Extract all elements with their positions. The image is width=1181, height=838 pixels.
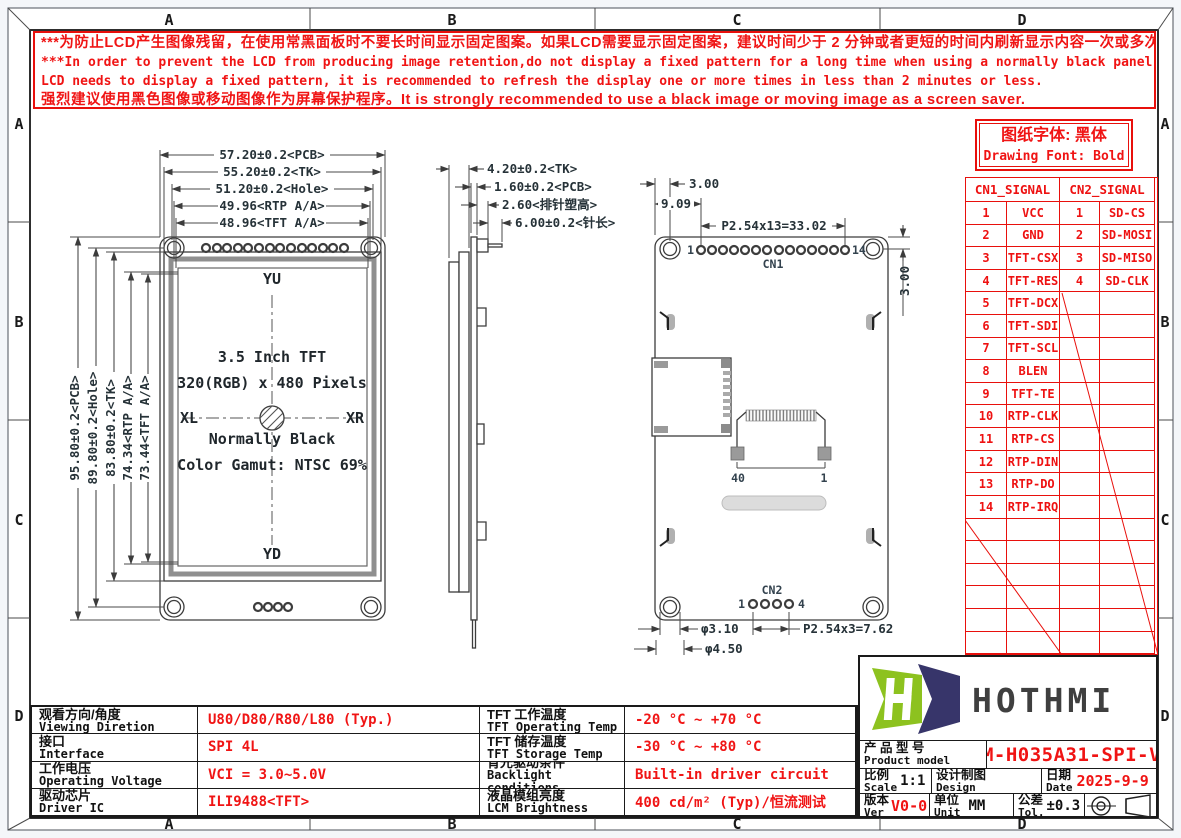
- cell: 8: [966, 360, 1007, 383]
- cell: [1100, 360, 1155, 383]
- label-yu: YU: [263, 270, 281, 288]
- dim-header-height: 2.60<排针塑高>: [502, 197, 597, 212]
- cn1-label: CN1: [763, 257, 784, 271]
- side-dims: 4.20±0.2<TK> 1.60±0.2<PCB> 2.60<排针塑高> 6.…: [436, 161, 615, 258]
- design-label-en: Design: [936, 782, 986, 794]
- spec-label: TFT 储存温度TFT Storage Temp: [480, 734, 625, 761]
- signal-table: CN1_SIGNAL CN2_SIGNAL 1VCC1SD-CS 2GND2SD…: [965, 177, 1158, 655]
- cell: [1100, 473, 1155, 496]
- fpc-pin40-label: 40: [731, 471, 745, 485]
- font-note-en: Drawing Font: Bold: [980, 148, 1128, 165]
- cell: [1060, 496, 1100, 519]
- display-size-text: 3.5 Inch TFT: [218, 348, 326, 366]
- cell: RTP-DO: [1007, 473, 1060, 496]
- cell: 3: [966, 247, 1007, 270]
- cell: TFT-DCX: [1007, 292, 1060, 315]
- cell: 10: [966, 405, 1007, 428]
- cell: [1100, 292, 1155, 315]
- display-mode-text: Normally Black: [209, 430, 335, 448]
- cell: 2: [966, 225, 1007, 248]
- spec-label: 液晶模组亮度LCM Brightness: [480, 789, 625, 816]
- drawing-sheet: A B C D A B C D A B C D A B C D: [0, 0, 1181, 838]
- cell: [1060, 292, 1100, 315]
- spec-label: 接口Interface: [32, 734, 198, 761]
- cell: [1100, 338, 1155, 361]
- cell: 3: [1060, 247, 1100, 270]
- cell: [1060, 360, 1100, 383]
- hothmi-logo-icon: HOTHMI: [860, 660, 1156, 738]
- cell: 13: [966, 473, 1007, 496]
- unit-label-en: Unit: [934, 807, 961, 819]
- spec-label-en: TFT Operating Temp: [487, 721, 624, 734]
- grid-row-d-right: D: [1160, 707, 1169, 725]
- warning-line-2: ***In order to prevent the LCD from prod…: [41, 53, 1148, 72]
- dim-pcb-height: 95.80±0.2<PCB>: [67, 375, 82, 480]
- spec-value: -30 °C ~ +80 °C: [625, 734, 856, 761]
- cell: 12: [966, 451, 1007, 474]
- grid-row-d-left: D: [14, 707, 23, 725]
- logo-text: HOTHMI: [972, 681, 1115, 720]
- label-xr: XR: [346, 409, 365, 427]
- cell: TFT-SCL: [1007, 338, 1060, 361]
- cell: GND: [1007, 225, 1060, 248]
- projection-symbol-icon: [1086, 794, 1156, 818]
- cell: 6: [966, 315, 1007, 338]
- dim-pin1-offset: 9.09: [661, 196, 691, 211]
- warning-line-3: LCD needs to display a fixed pattern, it…: [41, 72, 1148, 91]
- dim-tk-width: 55.20±0.2<TK>: [223, 164, 321, 179]
- cn1-pin14-label: 14: [852, 243, 866, 257]
- spec-label-en: Backlight conditions: [487, 769, 624, 789]
- ver-value: V0-0: [891, 797, 927, 815]
- scale-label-cn: 比例: [864, 769, 897, 782]
- cn1-pin1-label: 1: [687, 243, 694, 257]
- cell: [1100, 315, 1155, 338]
- cn2-header: CN2_SIGNAL: [1060, 178, 1155, 202]
- product-model: HTM-H035A31-SPI-V04: [987, 744, 1156, 766]
- cell: SD-MISO: [1100, 247, 1155, 270]
- cell: 4: [1060, 270, 1100, 293]
- tol-value: ±0.3: [1047, 798, 1081, 814]
- spec-value: Built-in driver circuit: [625, 762, 856, 789]
- cell: 14: [966, 496, 1007, 519]
- spec-label-en: Viewing Diretion: [39, 721, 197, 734]
- dim-hole-offset-right: 3.00: [897, 266, 912, 296]
- dim-pcb-thickness: 1.60±0.2<PCB>: [494, 179, 592, 194]
- grid-row-b-right: B: [1160, 313, 1169, 331]
- scale-value: 1:1: [900, 773, 925, 789]
- slot-oval: [722, 496, 826, 510]
- spec-label: 观看方向/角度Viewing Diretion: [32, 707, 198, 734]
- spec-label: TFT 工作温度TFT Operating Temp: [480, 707, 625, 734]
- cell: TFT-SDI: [1007, 315, 1060, 338]
- display-resolution-text: 320(RGB) x 480 Pixels: [177, 374, 367, 392]
- cell: [1060, 315, 1100, 338]
- grid-row-b-left: B: [14, 313, 23, 331]
- spec-label-en: Interface: [39, 748, 197, 761]
- dim-tft-height: 73.44<TFT A/A>: [137, 375, 152, 480]
- grid-row-c-right: C: [1160, 511, 1169, 529]
- cell: [1060, 473, 1100, 496]
- grid-row-a-right: A: [1160, 115, 1169, 133]
- fpc-pin1-label: 1: [821, 471, 828, 485]
- cell: [1060, 451, 1100, 474]
- cn2-label: CN2: [762, 583, 783, 597]
- title-block: HOTHMI 产 品 型 号 Product model HTM-H035A31…: [858, 655, 1158, 818]
- cell: [1100, 496, 1155, 519]
- side-view: 4.20±0.2<TK> 1.60±0.2<PCB> 2.60<排针塑高> 6.…: [436, 161, 615, 648]
- spec-label-en: TFT Storage Temp: [487, 748, 624, 761]
- scale-label-en: Scale: [864, 782, 897, 794]
- spec-label-en: LCM Brightness: [487, 802, 624, 815]
- spec-value: U80/D80/R80/L80 (Typ.): [198, 707, 480, 734]
- ver-label-cn: 版本: [864, 794, 889, 807]
- logo: HOTHMI: [860, 657, 1156, 740]
- spec-label-cn: 观看方向/角度: [39, 708, 197, 721]
- font-note-cn: 图纸字体: 黑体: [980, 124, 1128, 148]
- dim-tk-thickness: 4.20±0.2<TK>: [487, 161, 577, 176]
- dim-tk-height: 83.80±0.2<TK>: [103, 379, 118, 477]
- cn2-pin1-label: 1: [738, 597, 745, 611]
- cell: RTP-DIN: [1007, 451, 1060, 474]
- spec-label-cn: TFT 储存温度: [487, 735, 624, 748]
- spec-value: ILI9488<TFT>: [198, 789, 480, 816]
- spec-label: 驱动芯片Driver IC: [32, 789, 198, 816]
- back-view: 1 14 CN1 40 1: [634, 176, 912, 656]
- cn2-pin4-label: 4: [798, 597, 805, 611]
- spec-value: -20 °C ~ +70 °C: [625, 707, 856, 734]
- cell: 5: [966, 292, 1007, 315]
- dim-hole-height: 89.80±0.2<Hole>: [85, 372, 100, 485]
- cell: [1100, 451, 1155, 474]
- date-label-cn: 日期: [1046, 769, 1073, 782]
- spec-table: 观看方向/角度Viewing Diretion U80/D80/R80/L80 …: [30, 705, 858, 818]
- cell: RTP-CLK: [1007, 405, 1060, 428]
- retention-warning-box: ***为防止LCD产生图像残留，在使用常黑面板时不要长时间显示固定图案。如果LC…: [33, 31, 1156, 109]
- grid-col-d-top: D: [1017, 11, 1026, 29]
- cell: [1060, 428, 1100, 451]
- cell: [1060, 405, 1100, 428]
- ver-label-en: Ver: [864, 807, 889, 819]
- cell: 2: [1060, 225, 1100, 248]
- label-xl: XL: [180, 409, 198, 427]
- cell: 7: [966, 338, 1007, 361]
- dim-rtp-height: 74.34<RTP A/A>: [120, 375, 135, 480]
- cell: 4: [966, 270, 1007, 293]
- cell: VCC: [1007, 202, 1060, 225]
- dim-hole-offset: 3.00: [689, 176, 719, 191]
- unit-label-cn: 单位: [934, 794, 961, 807]
- cell: TFT-RES: [1007, 270, 1060, 293]
- spec-label-cn: TFT 工作温度: [487, 708, 624, 721]
- cell: 11: [966, 428, 1007, 451]
- dim-hole-inner-dia: φ3.10: [701, 621, 739, 636]
- cell: RTP-IRQ: [1007, 496, 1060, 519]
- cn1-header: CN1_SIGNAL: [966, 178, 1060, 202]
- spec-value: SPI 4L: [198, 734, 480, 761]
- grid-col-b-top: B: [447, 11, 456, 29]
- dim-hole-outer-dia: φ4.50: [705, 641, 743, 656]
- grid-row-c-left: C: [14, 511, 23, 529]
- spec-value: VCI = 3.0~5.0V: [198, 762, 480, 789]
- dim-hole-width: 51.20±0.2<Hole>: [216, 181, 329, 196]
- spec-label: 工作电压Operating Voltage: [32, 762, 198, 789]
- dim-rtp-width: 49.96<RTP A/A>: [219, 198, 324, 213]
- date-value: 2025-9-9: [1077, 772, 1149, 790]
- dim-pcb-width: 57.20±0.2<PCB>: [219, 147, 324, 162]
- display-gamut-text: Color Gamut: NTSC 69%: [177, 456, 367, 474]
- tol-label-en: Tol.: [1018, 807, 1045, 819]
- cell: 1: [1060, 202, 1100, 225]
- spec-label-en: Operating Voltage: [39, 775, 197, 788]
- dim-cn1-pitch: P2.54x13=33.02: [721, 218, 826, 233]
- front-view: YU YD XL XR 3.5 Inch TFT 320(RGB) x 480 …: [67, 147, 385, 620]
- cell: [1100, 405, 1155, 428]
- cell: TFT-TE: [1007, 383, 1060, 406]
- label-yd: YD: [263, 545, 281, 563]
- design-label-cn: 设计制图: [936, 769, 986, 782]
- dim-tft-width: 48.96<TFT A/A>: [219, 215, 324, 230]
- grid-col-a-top: A: [164, 11, 173, 29]
- cell: BLEN: [1007, 360, 1060, 383]
- cell: SD-CLK: [1100, 270, 1155, 293]
- cell: 9: [966, 383, 1007, 406]
- cell: [1100, 383, 1155, 406]
- spec-label: 背光驱动条件Backlight conditions: [480, 762, 625, 789]
- tol-label-cn: 公差: [1018, 794, 1045, 807]
- unit-value: MM: [969, 798, 986, 814]
- spec-label-en: Driver IC: [39, 802, 197, 815]
- cell: TFT-CSX: [1007, 247, 1060, 270]
- dim-cn2-pitch: P2.54x3=7.62: [803, 621, 893, 636]
- warning-line-4: 强烈建议使用黑色图像或移动图像作为屏幕保护程序。It is strongly r…: [41, 91, 1148, 109]
- date-label-en: Date: [1046, 782, 1073, 794]
- font-note-box: 图纸字体: 黑体 Drawing Font: Bold: [975, 119, 1133, 171]
- spec-label-cn: 接口: [39, 735, 197, 748]
- cell: [1100, 428, 1155, 451]
- sd-card-socket: [652, 358, 731, 436]
- cell: 1: [966, 202, 1007, 225]
- product-label-en: Product model: [864, 755, 950, 767]
- warning-line-1: ***为防止LCD产生图像残留，在使用常黑面板时不要长时间显示固定图案。如果LC…: [41, 34, 1148, 53]
- grid-row-a-left: A: [14, 115, 23, 133]
- cell: SD-MOSI: [1100, 225, 1155, 248]
- cell: RTP-CS: [1007, 428, 1060, 451]
- spec-value: 400 cd/m² (Typ)/恒流测试: [625, 789, 856, 816]
- cell: SD-CS: [1100, 202, 1155, 225]
- dim-pin-length: 6.00±0.2<针长>: [515, 215, 615, 230]
- cell: [1060, 338, 1100, 361]
- cell: [1060, 383, 1100, 406]
- grid-col-c-top: C: [732, 11, 741, 29]
